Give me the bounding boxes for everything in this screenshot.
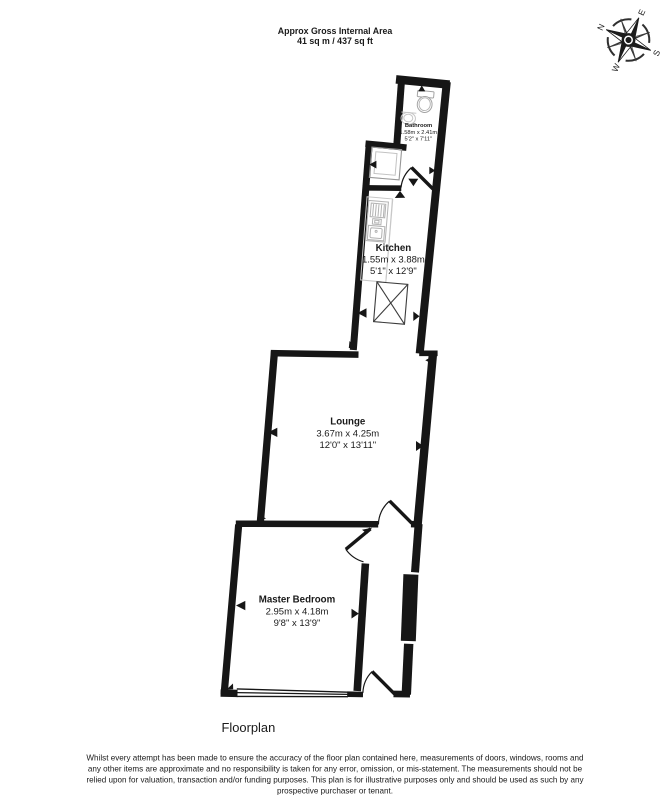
svg-text:Lounge: Lounge <box>330 417 366 428</box>
svg-text:12'0" x 13'11": 12'0" x 13'11" <box>319 440 376 451</box>
svg-text:41 sq m / 437 sq ft: 41 sq m / 437 sq ft <box>297 36 373 46</box>
svg-text:9'8" x 13'9": 9'8" x 13'9" <box>274 618 321 629</box>
svg-text:Kitchen: Kitchen <box>376 243 412 254</box>
svg-text:prospective purchaser or tenan: prospective purchaser or tenant. <box>277 786 393 795</box>
svg-text:5'1" x 12'9": 5'1" x 12'9" <box>370 266 417 277</box>
svg-text:Master Bedroom: Master Bedroom <box>259 595 336 606</box>
svg-text:Whilst every attempt has been: Whilst every attempt has been made to en… <box>86 753 583 762</box>
svg-text:5'2" x 7'11": 5'2" x 7'11" <box>404 137 432 143</box>
svg-text:Bathroom: Bathroom <box>405 123 432 129</box>
svg-text:Approx Gross Internal Area: Approx Gross Internal Area <box>278 26 393 36</box>
svg-text:relied upon for valuation, tra: relied upon for valuation, transaction a… <box>86 775 584 784</box>
svg-text:2.95m x 4.18m: 2.95m x 4.18m <box>266 606 329 617</box>
svg-text:any other items are approximat: any other items are approximate and no r… <box>88 764 583 773</box>
svg-text:1.58m x 2.41m: 1.58m x 2.41m <box>399 130 437 136</box>
svg-text:1.55m x 3.88m: 1.55m x 3.88m <box>362 255 425 266</box>
svg-text:Floorplan: Floorplan <box>222 720 276 735</box>
svg-text:3.67m x 4.25m: 3.67m x 4.25m <box>316 428 379 439</box>
